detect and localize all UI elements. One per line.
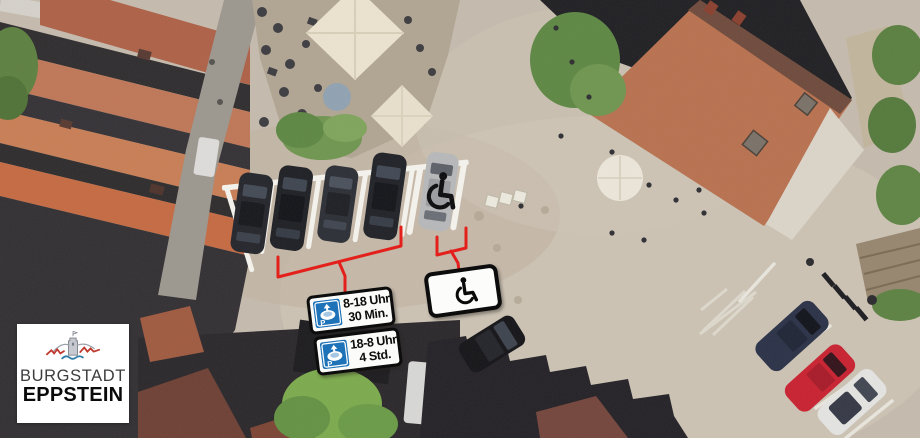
parking-disc-letter: P (327, 359, 333, 369)
logo-subtitle: EPPSTEIN (23, 384, 124, 407)
wheelchair-icon (446, 274, 480, 308)
town-logo: BURGSTADT EPPSTEIN (17, 324, 129, 423)
parking-disc-letter: P (320, 318, 326, 328)
logo-skyline-icon (42, 330, 104, 366)
photo-grain (0, 0, 920, 438)
parking-disc-icon: P (320, 339, 350, 369)
sign-line-duration: 4 Std. (359, 348, 392, 366)
aerial-parking-annotation-image: P 8-18 Uhr 30 Min. P 18-8 Uhr 4 Std. BUR… (0, 0, 920, 438)
parking-disc-icon: P (313, 298, 343, 328)
aerial-photo (0, 0, 920, 438)
sign-line-duration: 30 Min. (348, 306, 389, 324)
